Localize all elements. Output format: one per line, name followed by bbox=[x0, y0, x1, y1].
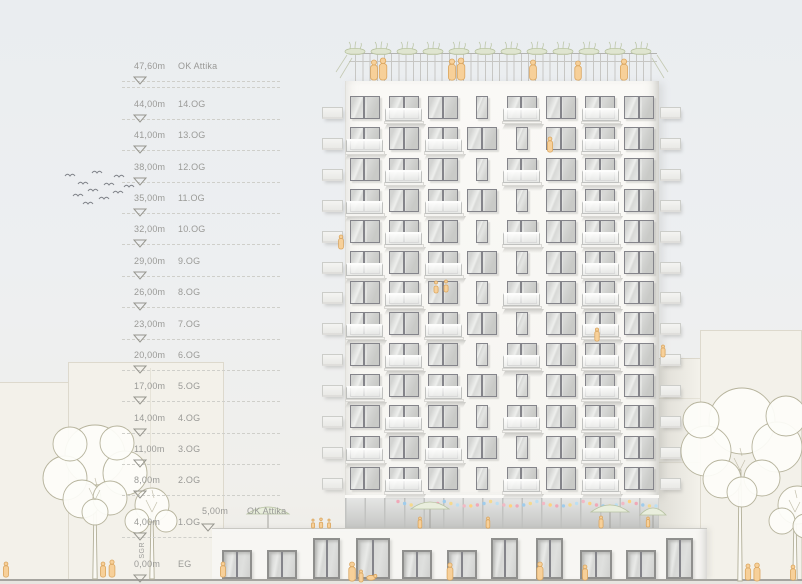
person-figure bbox=[791, 565, 796, 580]
person-figure bbox=[101, 562, 106, 577]
tree bbox=[769, 486, 802, 580]
person-figure bbox=[3, 562, 8, 577]
person-figure bbox=[379, 58, 387, 80]
person-figure bbox=[312, 519, 315, 528]
person-figure bbox=[745, 564, 750, 580]
person-figure bbox=[418, 517, 422, 528]
tree bbox=[125, 488, 177, 579]
person-figure bbox=[444, 280, 448, 292]
bird-icon bbox=[114, 175, 124, 177]
roof-planting bbox=[345, 42, 365, 55]
parasol-umbrella bbox=[591, 505, 629, 528]
roof-planting bbox=[579, 42, 599, 55]
bird-flock bbox=[65, 171, 134, 204]
roof-planting bbox=[527, 42, 547, 55]
bird-icon bbox=[65, 174, 75, 176]
tree bbox=[43, 425, 147, 579]
person-figure bbox=[448, 59, 455, 80]
roof-planting bbox=[371, 42, 391, 55]
roof-corner-plant-left bbox=[336, 55, 352, 78]
elevation-drawing: 47,60mOK Attika44,00m14.OG41,00m13.OG38,… bbox=[0, 0, 802, 584]
bird-icon bbox=[113, 191, 123, 193]
bird-icon bbox=[124, 185, 134, 187]
scenery-layer bbox=[0, 0, 802, 584]
bird-icon bbox=[83, 202, 93, 204]
person-figure bbox=[595, 328, 599, 341]
person-figure bbox=[754, 563, 760, 581]
person-figure bbox=[109, 560, 115, 577]
roof-planting bbox=[605, 42, 625, 55]
person-figure bbox=[548, 137, 553, 152]
roof-corner-plant-right bbox=[652, 55, 668, 78]
person-figure bbox=[371, 60, 378, 80]
bird-icon bbox=[104, 183, 114, 185]
person-figure bbox=[575, 61, 582, 80]
parasol-umbrella bbox=[411, 502, 449, 528]
person-figure bbox=[620, 59, 627, 80]
roof-planting bbox=[423, 42, 443, 55]
tree bbox=[681, 388, 802, 581]
bird-icon bbox=[88, 189, 98, 191]
person-figure bbox=[349, 562, 356, 581]
person-figure bbox=[328, 519, 331, 528]
roof-planting bbox=[449, 42, 469, 55]
person-figure bbox=[434, 281, 438, 293]
person-figure bbox=[537, 562, 543, 580]
dog-figure bbox=[367, 574, 377, 580]
bird-icon bbox=[78, 182, 88, 184]
person-figure bbox=[447, 563, 453, 580]
person-figure bbox=[319, 518, 322, 528]
parasol-umbrella bbox=[247, 507, 289, 528]
parasol-umbrella bbox=[640, 508, 666, 528]
person-figure bbox=[457, 58, 465, 80]
person-figure bbox=[583, 565, 588, 580]
person-figure bbox=[646, 517, 649, 527]
roof-planting bbox=[397, 42, 417, 55]
person-figure bbox=[339, 235, 344, 249]
roof-planting bbox=[553, 42, 573, 55]
person-figure bbox=[661, 345, 665, 357]
bird-icon bbox=[73, 194, 83, 196]
person-figure bbox=[486, 517, 490, 528]
roof-planting bbox=[475, 42, 495, 55]
roof-planting bbox=[501, 42, 521, 55]
person-figure bbox=[530, 60, 537, 80]
person-figure bbox=[220, 562, 225, 577]
bird-icon bbox=[92, 171, 102, 173]
bird-icon bbox=[99, 197, 109, 199]
person-figure bbox=[359, 570, 363, 582]
roof-planting bbox=[631, 42, 651, 55]
person-figure bbox=[599, 516, 603, 528]
